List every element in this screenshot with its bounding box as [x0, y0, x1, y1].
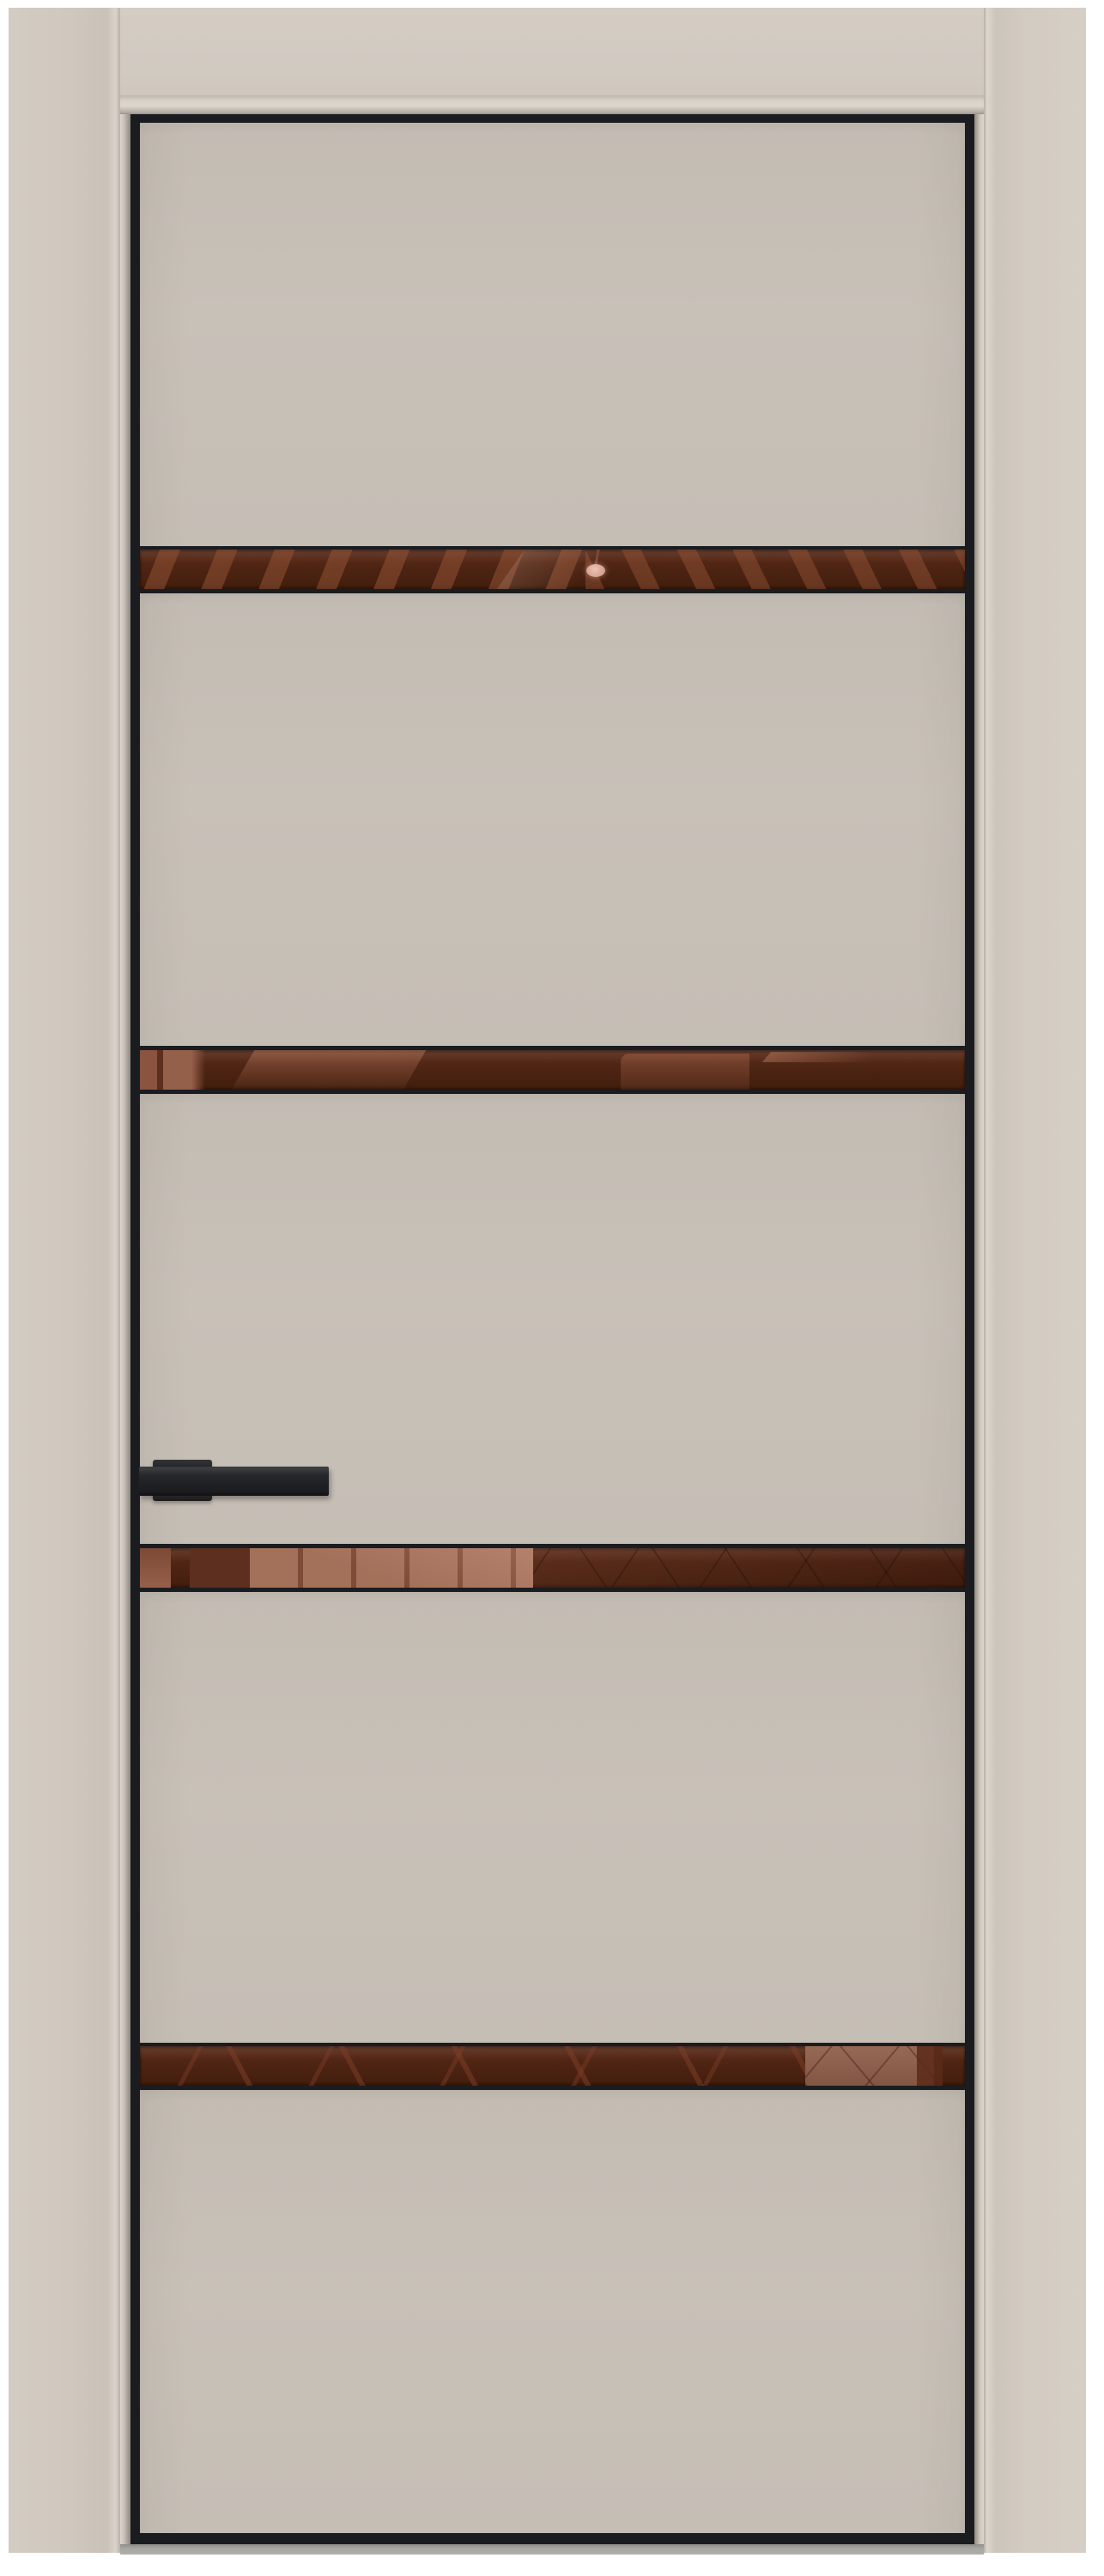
door-product-photo [0, 0, 1104, 2576]
frame-reveal-left [120, 114, 130, 2544]
reflection-light-block [805, 2046, 934, 2086]
door-panel-1 [140, 123, 965, 546]
reflection-ceiling-beams [585, 550, 965, 589]
glass-insert-1 [140, 550, 965, 589]
frame-reveal-right [974, 114, 984, 2544]
handle-lever [139, 1467, 329, 1496]
glass-insert-4 [140, 2046, 965, 2086]
door-frame-header [120, 8, 984, 114]
reflection-lattice [533, 1548, 965, 1588]
door-panel-2 [140, 593, 965, 1046]
door-leaf [130, 114, 974, 2544]
door-handle [139, 1460, 345, 1504]
reflection-wall-block [621, 1054, 749, 1090]
reflection-highlight-streak [762, 1052, 874, 1062]
reflection-wood-planks [250, 1548, 533, 1588]
reflection-door-frame [140, 1050, 205, 1090]
reflection-dark-column [190, 1548, 252, 1588]
reflection-dark-band [917, 2046, 943, 2086]
glass-insert-2 [140, 1050, 965, 1090]
wall-left-section [9, 8, 120, 2553]
glass-insert-3 [140, 1548, 965, 1588]
door-panel-4 [140, 1592, 965, 2043]
wall-right-section [984, 8, 1086, 2553]
door-panel-5 [140, 2090, 965, 2533]
reflection-wall-sliver [140, 1548, 171, 1588]
floor-strip [120, 2544, 984, 2555]
reflection-light-wedge [232, 1050, 427, 1090]
pendant-light-reflection [586, 564, 605, 577]
